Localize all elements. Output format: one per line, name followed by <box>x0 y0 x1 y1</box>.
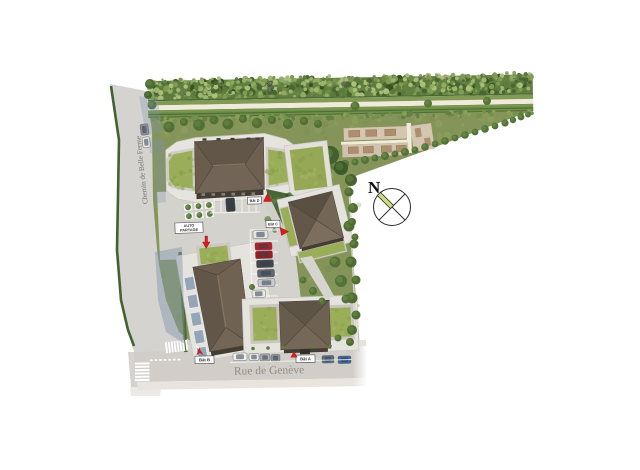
svg-text:Bât C: Bât C <box>268 222 278 226</box>
svg-text:Rue de Genève: Rue de Genève <box>234 364 305 378</box>
svg-text:Bât A: Bât A <box>300 356 311 361</box>
svg-text:N: N <box>368 178 381 197</box>
svg-text:PARTAGE: PARTAGE <box>180 228 199 233</box>
svg-text:Bât B: Bât B <box>199 357 210 362</box>
svg-text:Bât D: Bât D <box>249 199 259 203</box>
